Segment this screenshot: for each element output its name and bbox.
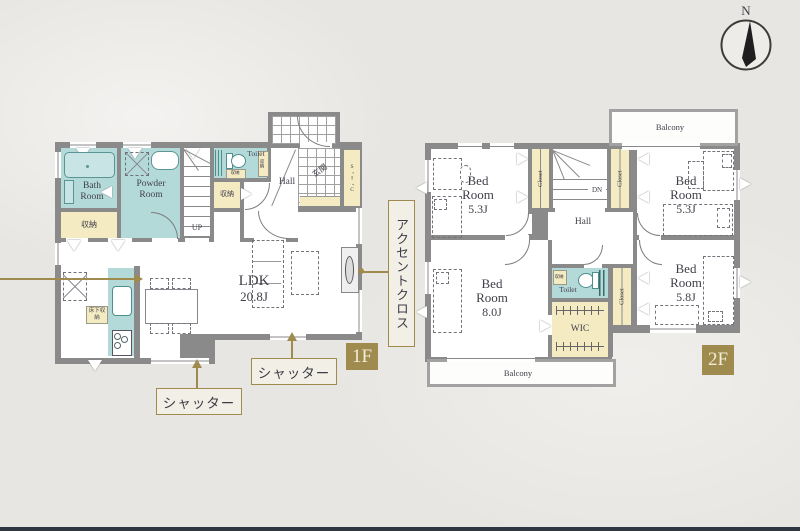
- chair-icon: [150, 278, 169, 289]
- window: [425, 262, 431, 294]
- vent-triangle-icon: [416, 182, 427, 194]
- shutter-arrow-line: [196, 366, 198, 388]
- storage-label: 収納: [61, 212, 117, 238]
- bed-size: 8.0J: [482, 306, 502, 319]
- washer-icon: [125, 152, 149, 176]
- closet-door-icon: [517, 191, 528, 203]
- door-wedge-icon: [67, 240, 81, 251]
- closet-door-icon: [638, 272, 649, 284]
- bed-name: Bed Room: [664, 174, 708, 203]
- window: [55, 243, 61, 265]
- closet-door-icon: [638, 153, 649, 165]
- kitchen-pointer-arrowhead: [134, 274, 143, 284]
- refrigerator-space-icon: [63, 272, 87, 301]
- sink-icon: [151, 151, 179, 170]
- accent-cloth-label: アクセントクロス: [392, 218, 411, 330]
- bed-size: 5.3J: [676, 203, 696, 216]
- closet-label: Closet: [613, 268, 631, 325]
- bed3-label: Bed Room 8.0J: [466, 275, 518, 321]
- shutter-label: シャッター: [163, 392, 236, 412]
- wall: [631, 268, 637, 325]
- closet-label: Closet: [532, 149, 549, 208]
- dn-label: DN: [588, 186, 606, 196]
- accent-connector-line: [363, 271, 388, 273]
- door-wedge-icon: [111, 240, 125, 251]
- underfloor-storage-box: 床下収納: [86, 306, 108, 324]
- closet-door-icon: [638, 191, 649, 203]
- balcony-door-window: [447, 355, 535, 362]
- vent-triangle-icon: [740, 276, 751, 288]
- sofa-cushion-line: [253, 261, 281, 262]
- burner-icon: [114, 333, 121, 340]
- closet-door-icon: [638, 303, 649, 315]
- bath-label: Bath Room: [72, 180, 112, 204]
- hanger-rail-icon: [556, 306, 604, 315]
- drain-icon: [86, 165, 89, 168]
- vent-triangle-icon: [88, 360, 102, 371]
- toilet-storage-label-2f: 収納: [553, 270, 565, 283]
- toilet-label-2f: Toilet: [554, 285, 582, 295]
- vent-triangle-icon: [740, 178, 751, 190]
- shutter-callout-2: シャッター: [251, 358, 337, 385]
- wic-label: WIC: [565, 323, 595, 336]
- window: [650, 325, 696, 333]
- hall-label-2f: Hall: [568, 216, 598, 228]
- bed1-label: Bed Room 5.3J: [452, 172, 504, 218]
- wall: [298, 206, 356, 212]
- chair-icon: [172, 278, 191, 289]
- pillow-icon: [717, 208, 730, 228]
- sic-label: S・I・C: [344, 150, 360, 206]
- toilet-tank-icon: [592, 272, 599, 289]
- balcony-bottom-label: Balcony: [488, 368, 548, 380]
- bed2-label: Bed Room 5.3J: [660, 172, 712, 218]
- room-ldk: [214, 212, 240, 242]
- burner-icon: [114, 342, 121, 349]
- door-gap: [555, 208, 605, 212]
- wall: [633, 212, 637, 268]
- storage2-label: 収納: [214, 182, 240, 208]
- coffee-table-icon: [291, 251, 319, 295]
- bed-name: Bed Room: [664, 262, 708, 291]
- pillow-icon: [434, 199, 447, 210]
- closet-label: Closet: [611, 149, 629, 208]
- shutter-arrowhead: [287, 332, 297, 341]
- room-ldk: [298, 212, 356, 242]
- hanger-rail-icon: [556, 342, 604, 351]
- burner-icon: [121, 336, 128, 343]
- ldk-label: LDK 20.8J: [225, 272, 283, 306]
- compass-icon: [716, 18, 776, 72]
- accent-connector-dot: [358, 268, 364, 274]
- wic-door-icon: [540, 320, 551, 332]
- balcony-door-window: [622, 143, 700, 150]
- bed-name: Bed Room: [456, 174, 500, 203]
- floor1-badge: 1F: [346, 343, 378, 370]
- up-label: UP: [186, 222, 208, 234]
- desk-icon: [655, 305, 699, 325]
- window: [356, 208, 362, 244]
- floor2-badge: 2F: [702, 345, 734, 375]
- toilet-storage-label: 収納: [226, 169, 244, 177]
- wall: [629, 149, 637, 208]
- vent-triangle-icon: [416, 306, 427, 318]
- window: [458, 143, 482, 150]
- toilet-door-stripes: [599, 270, 607, 296]
- window: [55, 152, 61, 178]
- tv-icon: [345, 256, 354, 284]
- wall: [214, 208, 240, 212]
- kitchen-pointer-line: [0, 278, 136, 280]
- kitchen-sink-icon: [112, 286, 132, 316]
- pillow-icon: [436, 272, 449, 284]
- floor-plan-page: N: [0, 0, 800, 531]
- powder-label: Powder Room: [127, 178, 175, 202]
- ldk-name: LDK: [239, 273, 270, 290]
- bed-size: 5.8J: [676, 291, 696, 304]
- wall: [117, 148, 121, 238]
- dining-table-icon: [145, 289, 198, 324]
- pillow-icon: [708, 311, 723, 322]
- bathtub-icon: [64, 152, 115, 178]
- toilet-door-stripes: [215, 150, 222, 176]
- bottom-bar: [0, 527, 800, 531]
- window: [490, 143, 514, 150]
- shutter-callout-1: シャッター: [156, 388, 242, 415]
- chair-icon: [150, 323, 169, 334]
- bed4-label: Bed Room 5.8J: [660, 260, 712, 306]
- balcony-top-label: Balcony: [640, 122, 700, 134]
- wall: [552, 298, 608, 302]
- door-gap: [185, 238, 209, 242]
- ldk-size: 20.8J: [240, 290, 268, 305]
- chair-icon: [172, 323, 191, 334]
- bed-size: 5.3J: [468, 203, 488, 216]
- compass-north-label: N: [714, 4, 778, 19]
- bed-name: Bed Room: [470, 277, 514, 306]
- closet-door-icon: [517, 153, 528, 165]
- shutter-label: シャッター: [258, 362, 331, 382]
- toilet-storage-label: 収納: [258, 151, 267, 175]
- accent-cloth-callout: アクセントクロス: [388, 200, 415, 347]
- shutter-arrow-line: [291, 340, 293, 358]
- shutter-arrowhead: [192, 359, 202, 368]
- window: [356, 290, 362, 332]
- pillow-icon: [722, 154, 732, 168]
- hall-label-1f: Hall: [272, 176, 302, 188]
